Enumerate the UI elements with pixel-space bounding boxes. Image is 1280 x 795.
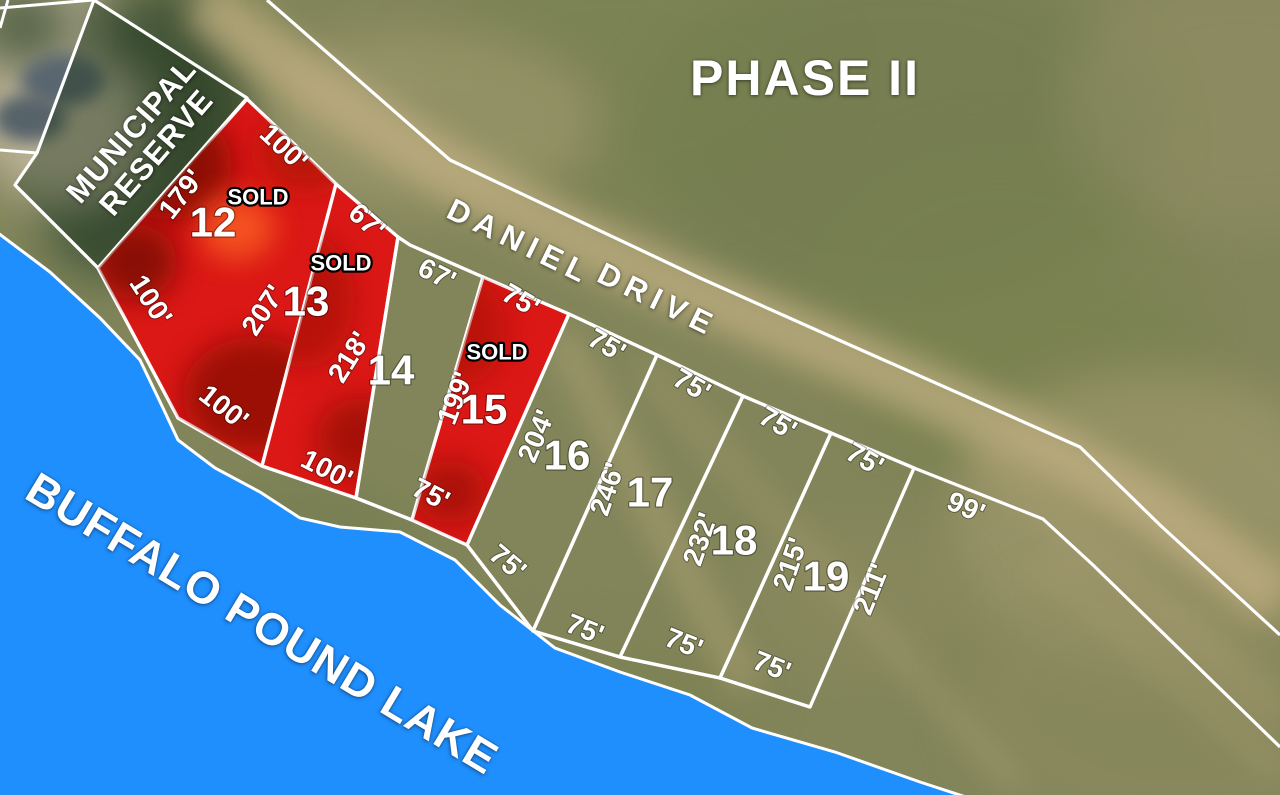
sold-badge-lot-15: SOLD: [466, 340, 527, 365]
lot-number-13: 13: [283, 278, 330, 325]
lot-number-18: 18: [711, 517, 758, 564]
lot-number-16: 16: [544, 432, 591, 479]
lot-number-17: 17: [627, 469, 674, 516]
lot-number-14: 14: [368, 347, 415, 394]
sold-badge-lot-12: SOLD: [227, 185, 288, 210]
lot-map-canvas: 179'100'100'100'207'67'67'218'100'75'199…: [0, 0, 1280, 795]
sold-badge-lot-13: SOLD: [310, 251, 371, 276]
lot-number-15: 15: [461, 386, 508, 433]
lot-number-19: 19: [803, 553, 850, 600]
phase-title: PHASE II: [690, 51, 920, 105]
